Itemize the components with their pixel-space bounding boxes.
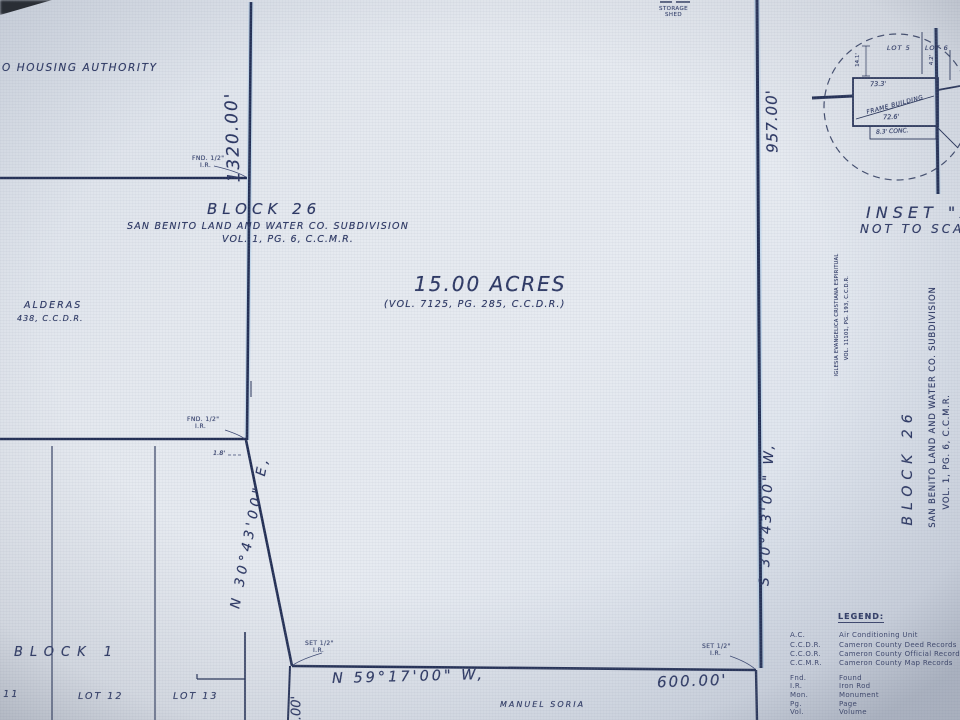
lot13-notch-line xyxy=(197,674,245,679)
right-block26-subdivision: SAN BENITO LAND AND WATER CO. SUBDIVISIO… xyxy=(928,286,938,527)
parcel-area-label: 15.00 ACRES xyxy=(414,272,567,296)
legend-abbr: A.C. xyxy=(790,631,805,639)
inset-lot6-label: LOT 6 xyxy=(925,44,949,52)
legend-abbr: Fnd. xyxy=(790,674,806,682)
marker-text: I.R. xyxy=(313,647,334,654)
lot12-label: LOT 12 xyxy=(78,691,123,702)
south-dimension-600: 600.00' xyxy=(657,671,728,691)
parcel-deed-reference: (VOL. 7125, PG. 285, C.C.D.R.) xyxy=(384,299,566,310)
balderas-deed-reference: 438, C.C.D.R. xyxy=(17,314,83,323)
marker-text: SET 1/2" xyxy=(702,643,731,650)
legend-abbr: C.C.D.R. xyxy=(790,641,821,649)
set-iron-rod-marker-left: SET 1/2" I.R. xyxy=(305,640,334,654)
west-dimension-1320: 1320.00' xyxy=(221,91,244,183)
balderas-owner-label: ALDERAS xyxy=(24,300,82,311)
marker-text: SET 1/2" xyxy=(305,640,334,647)
iglesia-deed-reference: VOL. 11101, PG. 193, C.C.D.R. xyxy=(844,276,850,360)
legend-desc: Cameron County Map Records xyxy=(839,659,953,667)
inset-dim-top: 73.3' xyxy=(870,80,887,89)
legend-desc: Found xyxy=(839,674,862,682)
block26-subdivision: SAN BENITO LAND AND WATER CO. SUBDIVISIO… xyxy=(127,221,409,232)
legend-abbr: C.C.M.R. xyxy=(790,659,822,667)
inset-dim-bottom: 72.6' xyxy=(883,113,900,122)
found-iron-rod-marker-mid: FND. 1/2" I.R. xyxy=(187,416,219,430)
legend-abbr: Mon. xyxy=(790,691,808,699)
inset-scale-note: NOT TO SCALE xyxy=(860,222,960,236)
right-block26-volume: VOL. 1, PG. 6, C.C.M.R. xyxy=(942,394,952,509)
east-dimension-957: 957.00' xyxy=(762,89,781,153)
housing-authority-label: O HOUSING AUTHORITY xyxy=(2,62,158,74)
plat-map-photo: O HOUSING AUTHORITY 1320.00' FND. 1/2" I… xyxy=(0,0,960,720)
legend-abbr: C.C.O.R. xyxy=(790,650,821,658)
inset-title: INSET "A" xyxy=(866,203,960,222)
south-east-stub-line xyxy=(756,670,757,720)
legend-desc: Iron Rod xyxy=(839,682,870,690)
set-iron-rod-marker-right: SET 1/2" I.R. xyxy=(702,643,731,657)
storage-shed-line2: SHED xyxy=(659,12,688,18)
inset-dim-right: 4.2' xyxy=(929,55,935,65)
marker-text: I.R. xyxy=(195,423,219,430)
legend-title: LEGEND: xyxy=(838,612,884,623)
legend-abbr: Vol. xyxy=(790,708,804,716)
storage-shed-label: STORAGE SHED xyxy=(659,6,688,18)
offset-dimension-note: 1.8' xyxy=(213,449,225,457)
legend-desc: Page xyxy=(839,700,857,708)
block26-title: BLOCK 26 xyxy=(207,200,321,218)
marker-text: I.R. xyxy=(200,162,224,169)
block26-volume: VOL. 1, PG. 6, C.C.M.R. xyxy=(222,234,354,245)
marker-text: FND. 1/2" xyxy=(187,416,219,423)
legend-desc: Air Conditioning Unit xyxy=(839,631,918,639)
survey-lines-svg xyxy=(0,0,960,720)
inset-lot5-label: LOT 5 xyxy=(887,44,911,52)
legend-desc: Volume xyxy=(839,708,867,716)
right-block26-title: BLOCK 26 xyxy=(900,408,916,525)
block1-title: BLOCK 1 xyxy=(14,645,119,660)
south-partial-dimension: .00' xyxy=(290,696,305,720)
inset-dim-left: 14.1' xyxy=(855,53,861,67)
iglesia-owner-label: IGLESIA EVANGELICA CRISTIANA ESPIRITUAL xyxy=(834,254,840,377)
found-iron-rod-marker-top: FND. 1/2" I.R. xyxy=(192,155,224,169)
manuel-soria-owner-label: MANUEL SORIA xyxy=(500,700,585,709)
legend-desc: Cameron County Official Records xyxy=(839,650,960,658)
legend-abbr: Pg. xyxy=(790,700,802,708)
legend-abbr: I.R. xyxy=(790,682,802,690)
legend-desc: Cameron County Deed Records xyxy=(839,641,957,649)
marker-text: FND. 1/2" xyxy=(192,155,224,162)
lot11-label: LOT 11 xyxy=(0,689,19,700)
marker-text: I.R. xyxy=(710,650,731,657)
inset-boundary-line xyxy=(936,28,938,194)
legend-desc: Monument xyxy=(839,691,879,699)
lot13-label: LOT 13 xyxy=(173,691,218,702)
